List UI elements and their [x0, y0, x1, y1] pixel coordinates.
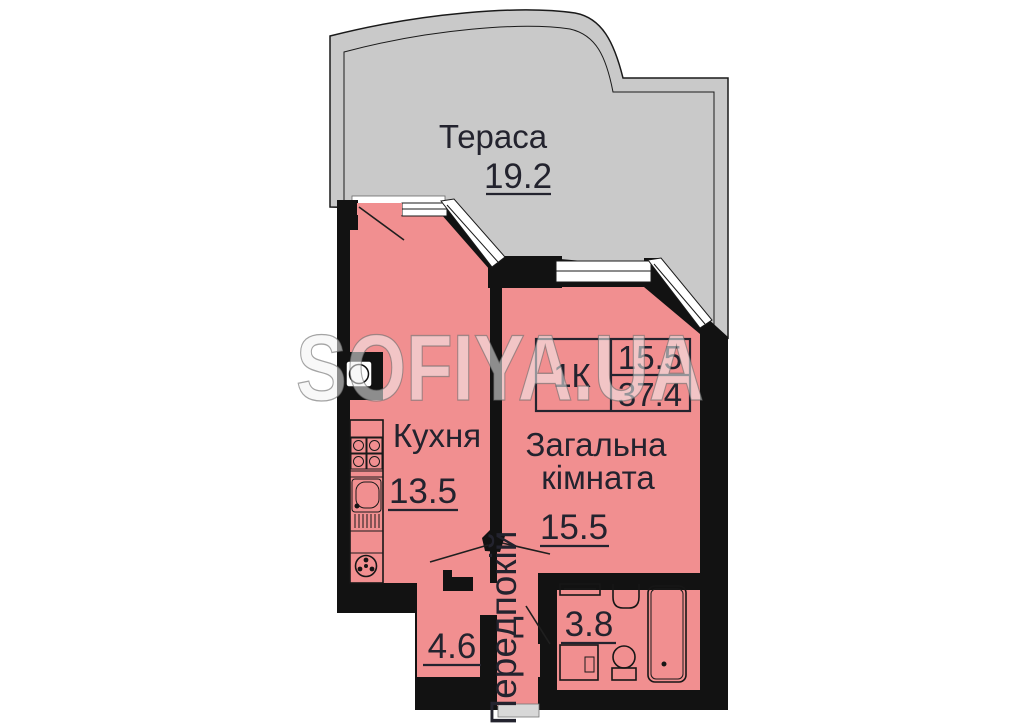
living-room-label-line2: кімната: [541, 459, 655, 496]
wall-corridor-right-upper: [538, 573, 557, 644]
bathroom-area-label: 3.8: [565, 605, 614, 644]
hallway-label: Передпокій: [483, 531, 524, 724]
kitchen-area-label: 13.5: [389, 472, 457, 511]
wall-top-left-corner: [337, 200, 358, 230]
kitchen-label: Кухня: [393, 417, 481, 454]
watermark: SOFIYA.UA: [296, 315, 704, 420]
living-room-area-label: 15.5: [540, 508, 608, 547]
floorplan-page: 1К 15.5 37.4 Тераса 19.2 Кухня 13.5 Зага…: [0, 0, 1024, 724]
wall-living-bottom: [540, 573, 700, 590]
floorplan-svg: 1К 15.5 37.4 Тераса 19.2 Кухня 13.5 Зага…: [0, 0, 1024, 724]
terrace-area-label: 19.2: [484, 157, 552, 196]
hallway-area-label: 4.6: [428, 627, 477, 666]
terrace-door-opening: [357, 203, 402, 215]
terrace-label: Тераса: [439, 118, 548, 155]
living-room-label-line1: Загальна: [526, 426, 668, 463]
wall-corridor-right-lower: [538, 677, 557, 710]
